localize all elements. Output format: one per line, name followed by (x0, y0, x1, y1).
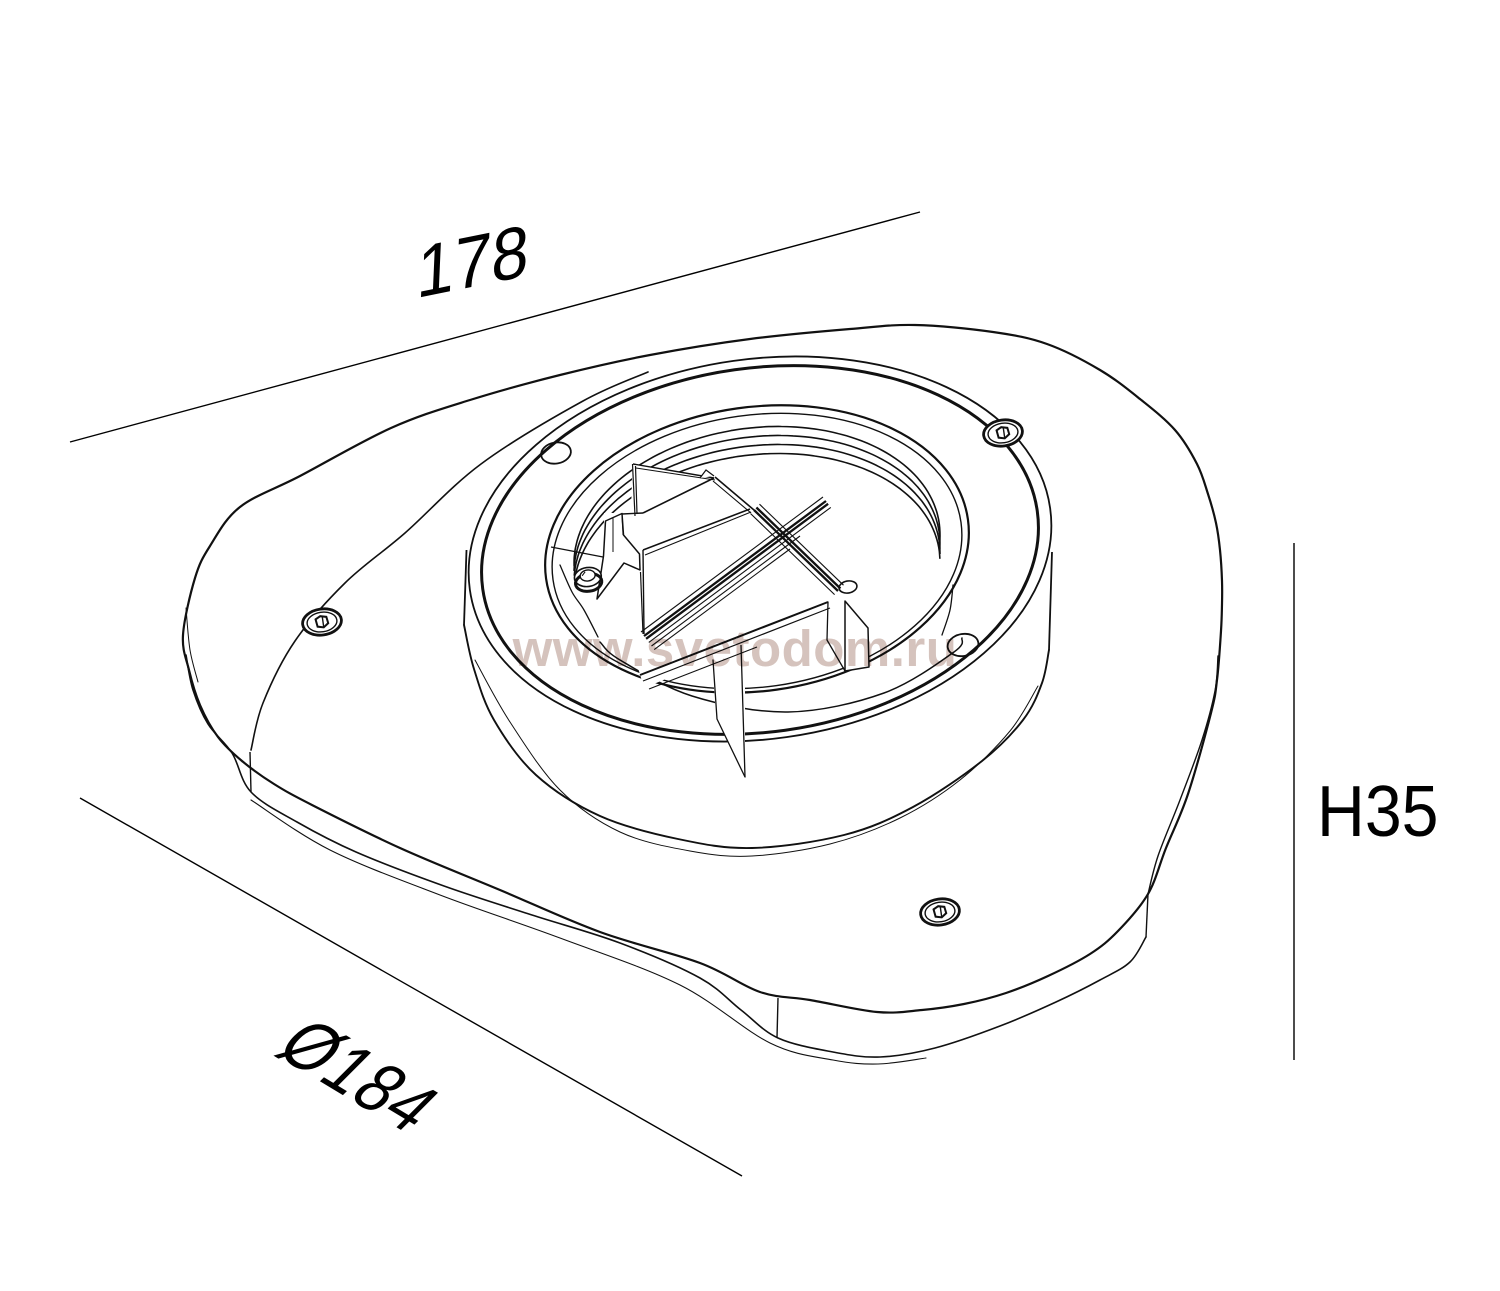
svg-text:www.svetodom.ru: www.svetodom.ru (512, 620, 958, 677)
svg-text:H35: H35 (1317, 770, 1438, 851)
